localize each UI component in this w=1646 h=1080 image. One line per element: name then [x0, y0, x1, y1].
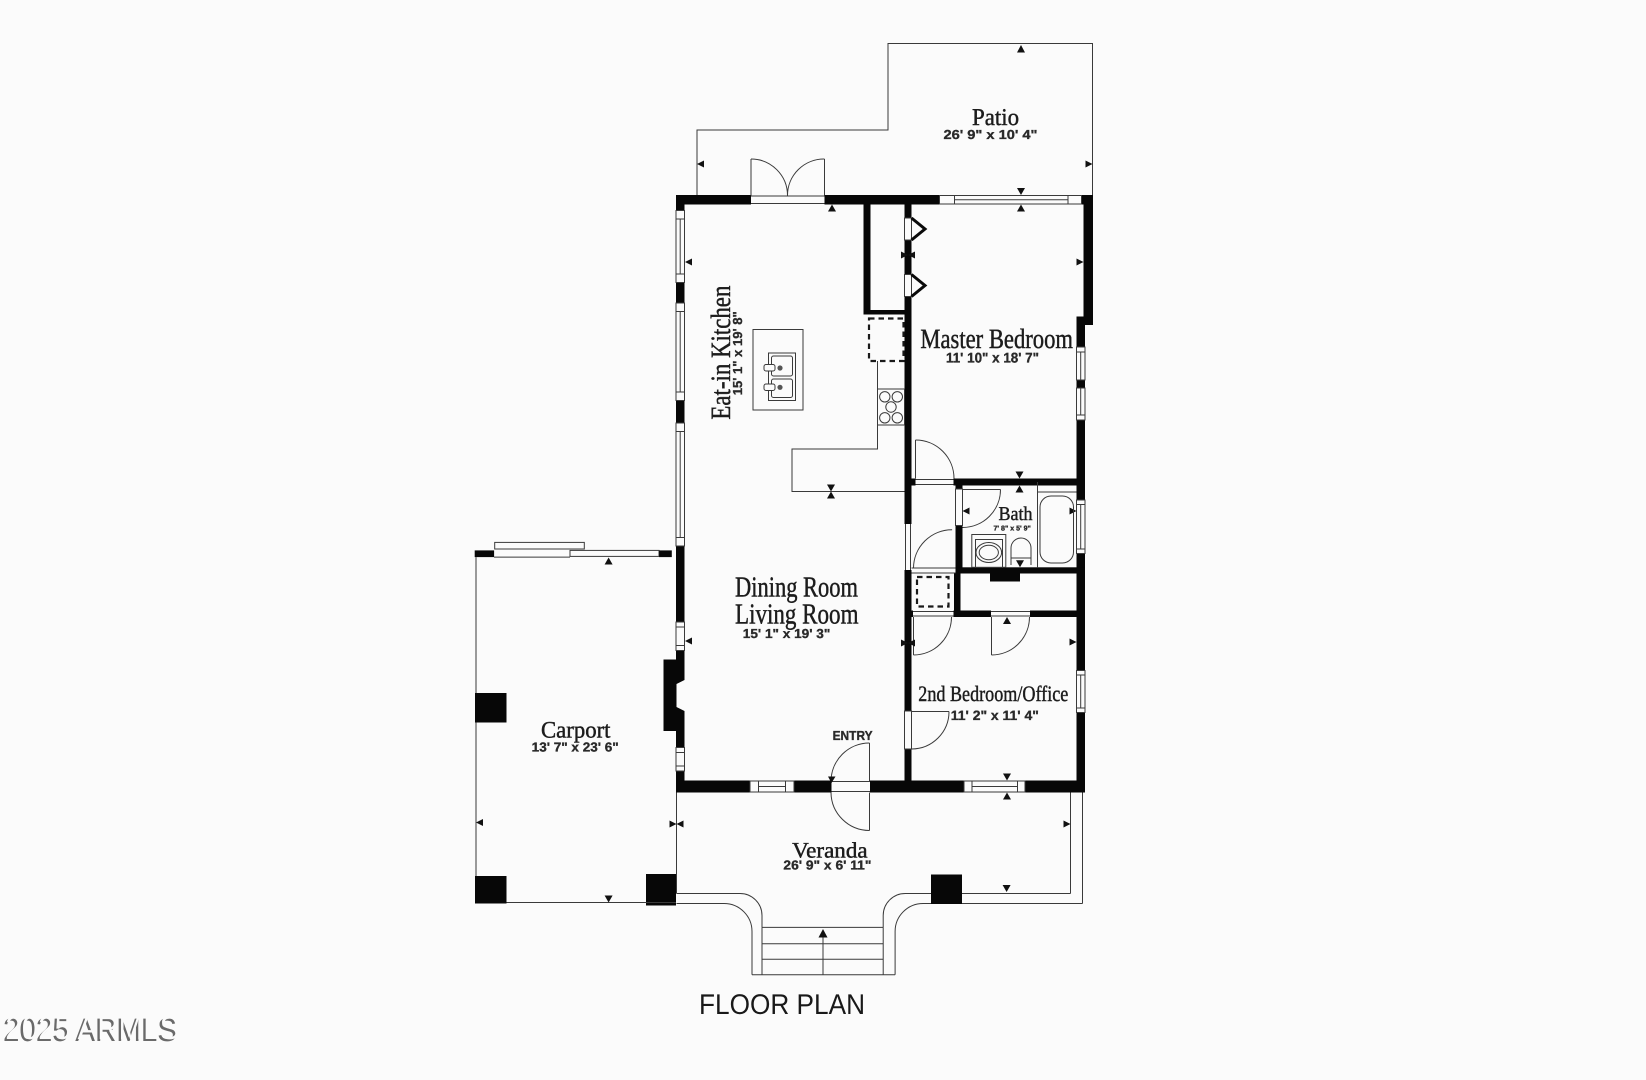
svg-text:Bath: Bath: [999, 504, 1033, 525]
svg-text:26' 9" x 6' 11": 26' 9" x 6' 11": [783, 858, 871, 873]
svg-text:7' 8" x 5' 9": 7' 8" x 5' 9": [994, 526, 1031, 533]
svg-text:FLOOR PLAN: FLOOR PLAN: [699, 989, 865, 1021]
svg-text:2025 ARMLS: 2025 ARMLS: [5, 1010, 179, 1046]
svg-text:15' 1" x 19' 3": 15' 1" x 19' 3": [743, 626, 831, 641]
svg-text:13' 7" x 23' 6": 13' 7" x 23' 6": [532, 739, 619, 754]
svg-text:26' 9" x 10' 4": 26' 9" x 10' 4": [944, 127, 1038, 142]
svg-text:ENTRY: ENTRY: [833, 728, 873, 743]
svg-text:2nd Bedroom/Office: 2nd Bedroom/Office: [918, 681, 1068, 706]
svg-text:11' 2" x 11' 4": 11' 2" x 11' 4": [951, 708, 1039, 723]
svg-text:11' 10" x 18' 7": 11' 10" x 18' 7": [946, 350, 1039, 366]
svg-text:15' 1" x 19' 8": 15' 1" x 19' 8": [730, 311, 745, 395]
